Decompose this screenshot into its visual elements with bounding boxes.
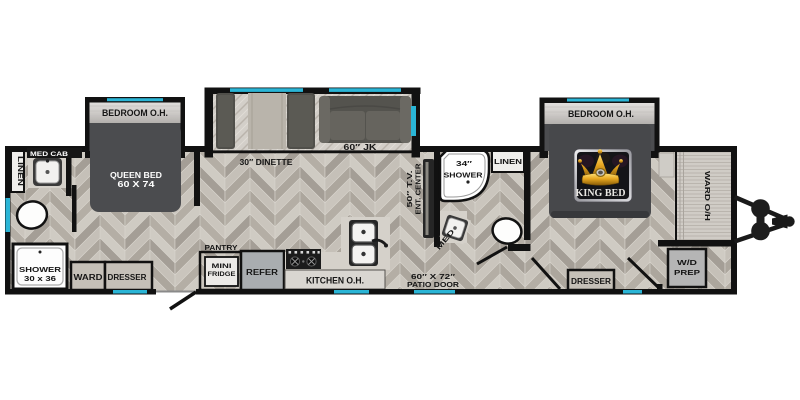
svg-text:MED CAB: MED CAB <box>30 151 68 158</box>
svg-text:QUEEN BED: QUEEN BED <box>110 170 162 180</box>
svg-text:BEDROOM O.H.: BEDROOM O.H. <box>568 109 634 119</box>
svg-text:60 X 74: 60 X 74 <box>118 180 156 189</box>
svg-text:FRIDGE: FRIDGE <box>208 271 237 278</box>
svg-text:30 x 36: 30 x 36 <box>24 276 56 283</box>
svg-text:LINEN: LINEN <box>494 157 522 166</box>
svg-text:WARD: WARD <box>74 273 103 282</box>
svg-text:PREP: PREP <box>674 268 700 277</box>
svg-text:KING BED: KING BED <box>576 188 626 199</box>
svg-text:60″ JK: 60″ JK <box>344 142 378 152</box>
svg-text:BEDROOM O.H.: BEDROOM O.H. <box>102 108 168 118</box>
svg-text:50″ T.V.: 50″ T.V. <box>407 170 414 207</box>
svg-text:W/D: W/D <box>677 258 698 267</box>
svg-text:34″: 34″ <box>456 161 473 168</box>
svg-text:SHOWER: SHOWER <box>19 265 62 274</box>
svg-text:KITCHEN O.H.: KITCHEN O.H. <box>306 276 364 286</box>
svg-text:PANTRY: PANTRY <box>205 243 238 252</box>
svg-text:SHOWER: SHOWER <box>444 171 484 180</box>
svg-text:60″ X 72″: 60″ X 72″ <box>411 274 456 281</box>
svg-text:ENT. CENTER: ENT. CENTER <box>416 164 423 215</box>
svg-text:30″ DINETTE: 30″ DINETTE <box>240 157 293 167</box>
svg-text:LINEN: LINEN <box>16 156 23 186</box>
svg-text:DRESSER: DRESSER <box>108 273 147 282</box>
svg-text:REFER: REFER <box>246 268 278 277</box>
svg-text:MINI: MINI <box>212 263 232 270</box>
svg-text:WARD O/H: WARD O/H <box>703 171 712 221</box>
svg-text:DRESSER: DRESSER <box>571 277 611 286</box>
svg-text:PATIO DOOR: PATIO DOOR <box>407 282 459 289</box>
